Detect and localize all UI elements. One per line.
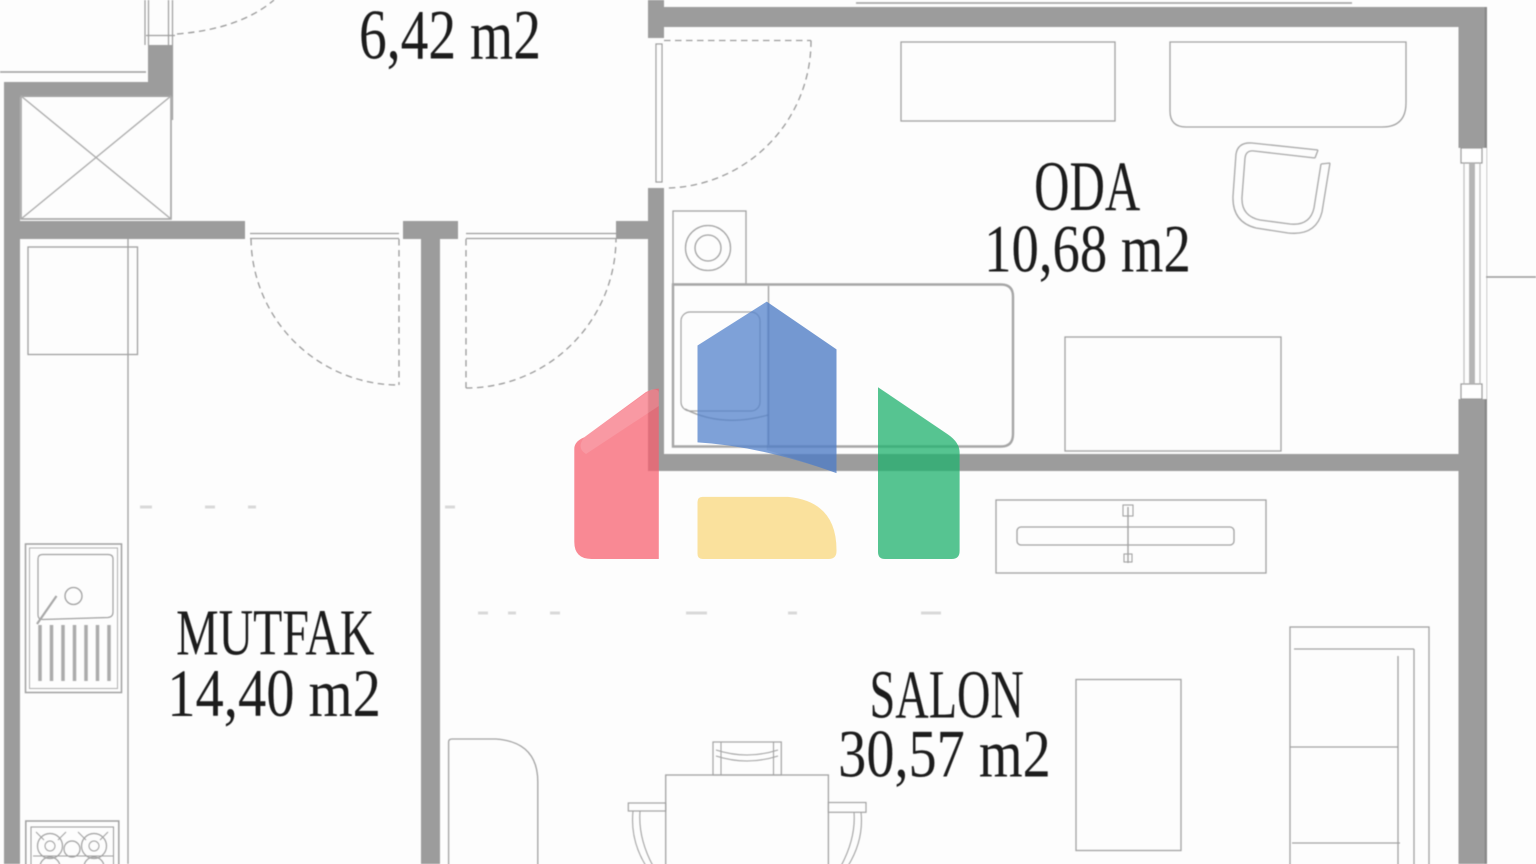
svg-text:10,68 m2: 10,68 m2	[984, 212, 1191, 287]
svg-text:6,42 m2: 6,42 m2	[359, 0, 541, 74]
svg-text:30,57 m2: 30,57 m2	[838, 718, 1051, 792]
svg-text:14,40 m2: 14,40 m2	[167, 658, 381, 732]
